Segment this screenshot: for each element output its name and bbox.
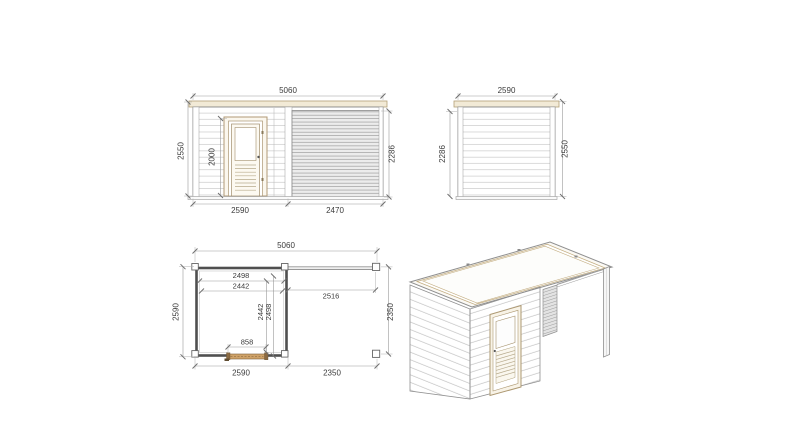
side-siding <box>459 109 554 196</box>
iso-door-window <box>496 316 515 349</box>
plan-bottom-pergola-dim: 2350 <box>323 369 341 378</box>
plan-top-inner-b-dim: 2442 <box>233 282 250 291</box>
plan-depth-left-dim: 2590 <box>172 303 181 321</box>
plan-top-inner-a-dim: 2498 <box>233 271 250 280</box>
front-height-left-dim: 2550 <box>177 142 186 160</box>
side-height-left-dim: 2286 <box>438 145 447 163</box>
side-corner-board-left <box>458 107 463 197</box>
plan-pergola-beam <box>288 267 373 269</box>
isometric-view <box>410 242 612 399</box>
front-door <box>224 117 267 196</box>
side-roof-band <box>454 101 559 107</box>
front-roof-band <box>189 101 387 107</box>
floor-plan-view: 5060 2498 2442 2516 2590 2442 2498 858 2… <box>172 241 396 378</box>
plan-door-hinge <box>225 359 230 362</box>
iso-slat-screen <box>543 285 557 337</box>
technical-drawing-page: 5060 2550 2000 2286 2590 2470 2590 2286 … <box>0 0 794 446</box>
side-base <box>456 197 557 200</box>
plan-door <box>225 352 269 361</box>
plan-overall-width-dim: 5060 <box>277 241 295 250</box>
front-corner-board-right <box>379 107 383 197</box>
iso-door <box>490 306 521 396</box>
front-overall-width-dim: 5060 <box>279 86 297 95</box>
front-door-window <box>235 128 256 161</box>
side-height-right-dim: 2550 <box>561 140 570 158</box>
plan-bottom-cabin-dim: 2590 <box>232 369 250 378</box>
front-bottom-cabin-dim: 2590 <box>231 206 249 215</box>
front-bottom-pergola-dim: 2470 <box>326 206 344 215</box>
plan-pergola-span-dim: 2516 <box>323 292 340 301</box>
front-door-height-dim: 2000 <box>208 148 217 166</box>
front-door-hinge-bottom <box>262 178 264 181</box>
plan-door-width-dim: 858 <box>241 338 254 347</box>
iso-door-handle <box>494 350 496 352</box>
side-width-dim: 2590 <box>498 86 516 95</box>
front-door-hinge-top <box>262 131 264 134</box>
front-slat-wall <box>292 111 380 198</box>
side-corner-board-right <box>550 107 555 197</box>
plan-depth-right-dim: 2350 <box>386 303 395 321</box>
front-elevation-view: 5060 2550 2000 2286 2590 2470 <box>177 86 397 215</box>
plan-inner-depth-b-dim: 2498 <box>264 304 273 321</box>
drawing-canvas: 5060 2550 2000 2286 2590 2470 2590 2286 … <box>0 0 794 446</box>
front-divider-post <box>285 107 292 197</box>
front-slat-height-dim: 2286 <box>388 145 397 163</box>
front-corner-board-left <box>193 107 199 197</box>
side-elevation-view: 2590 2286 2550 <box>438 86 570 200</box>
front-door-handle <box>257 156 259 158</box>
